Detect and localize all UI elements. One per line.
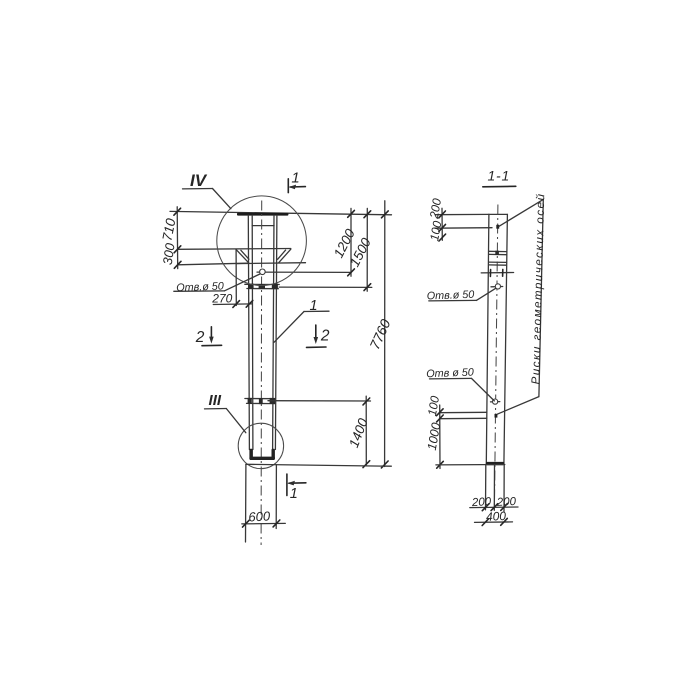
- svg-text:600: 600: [248, 508, 271, 524]
- svg-text:300: 300: [160, 241, 178, 265]
- svg-text:200: 200: [471, 496, 492, 509]
- svg-text:200: 200: [496, 496, 517, 509]
- svg-text:III: III: [209, 392, 222, 409]
- svg-text:1: 1: [291, 170, 299, 187]
- svg-text:1-1: 1-1: [487, 168, 510, 184]
- svg-text:2: 2: [320, 328, 330, 345]
- svg-text:400: 400: [486, 509, 507, 524]
- svg-text:IV: IV: [190, 171, 208, 190]
- svg-text:270: 270: [211, 291, 232, 305]
- svg-text:1: 1: [290, 486, 298, 502]
- svg-text:2: 2: [195, 329, 205, 346]
